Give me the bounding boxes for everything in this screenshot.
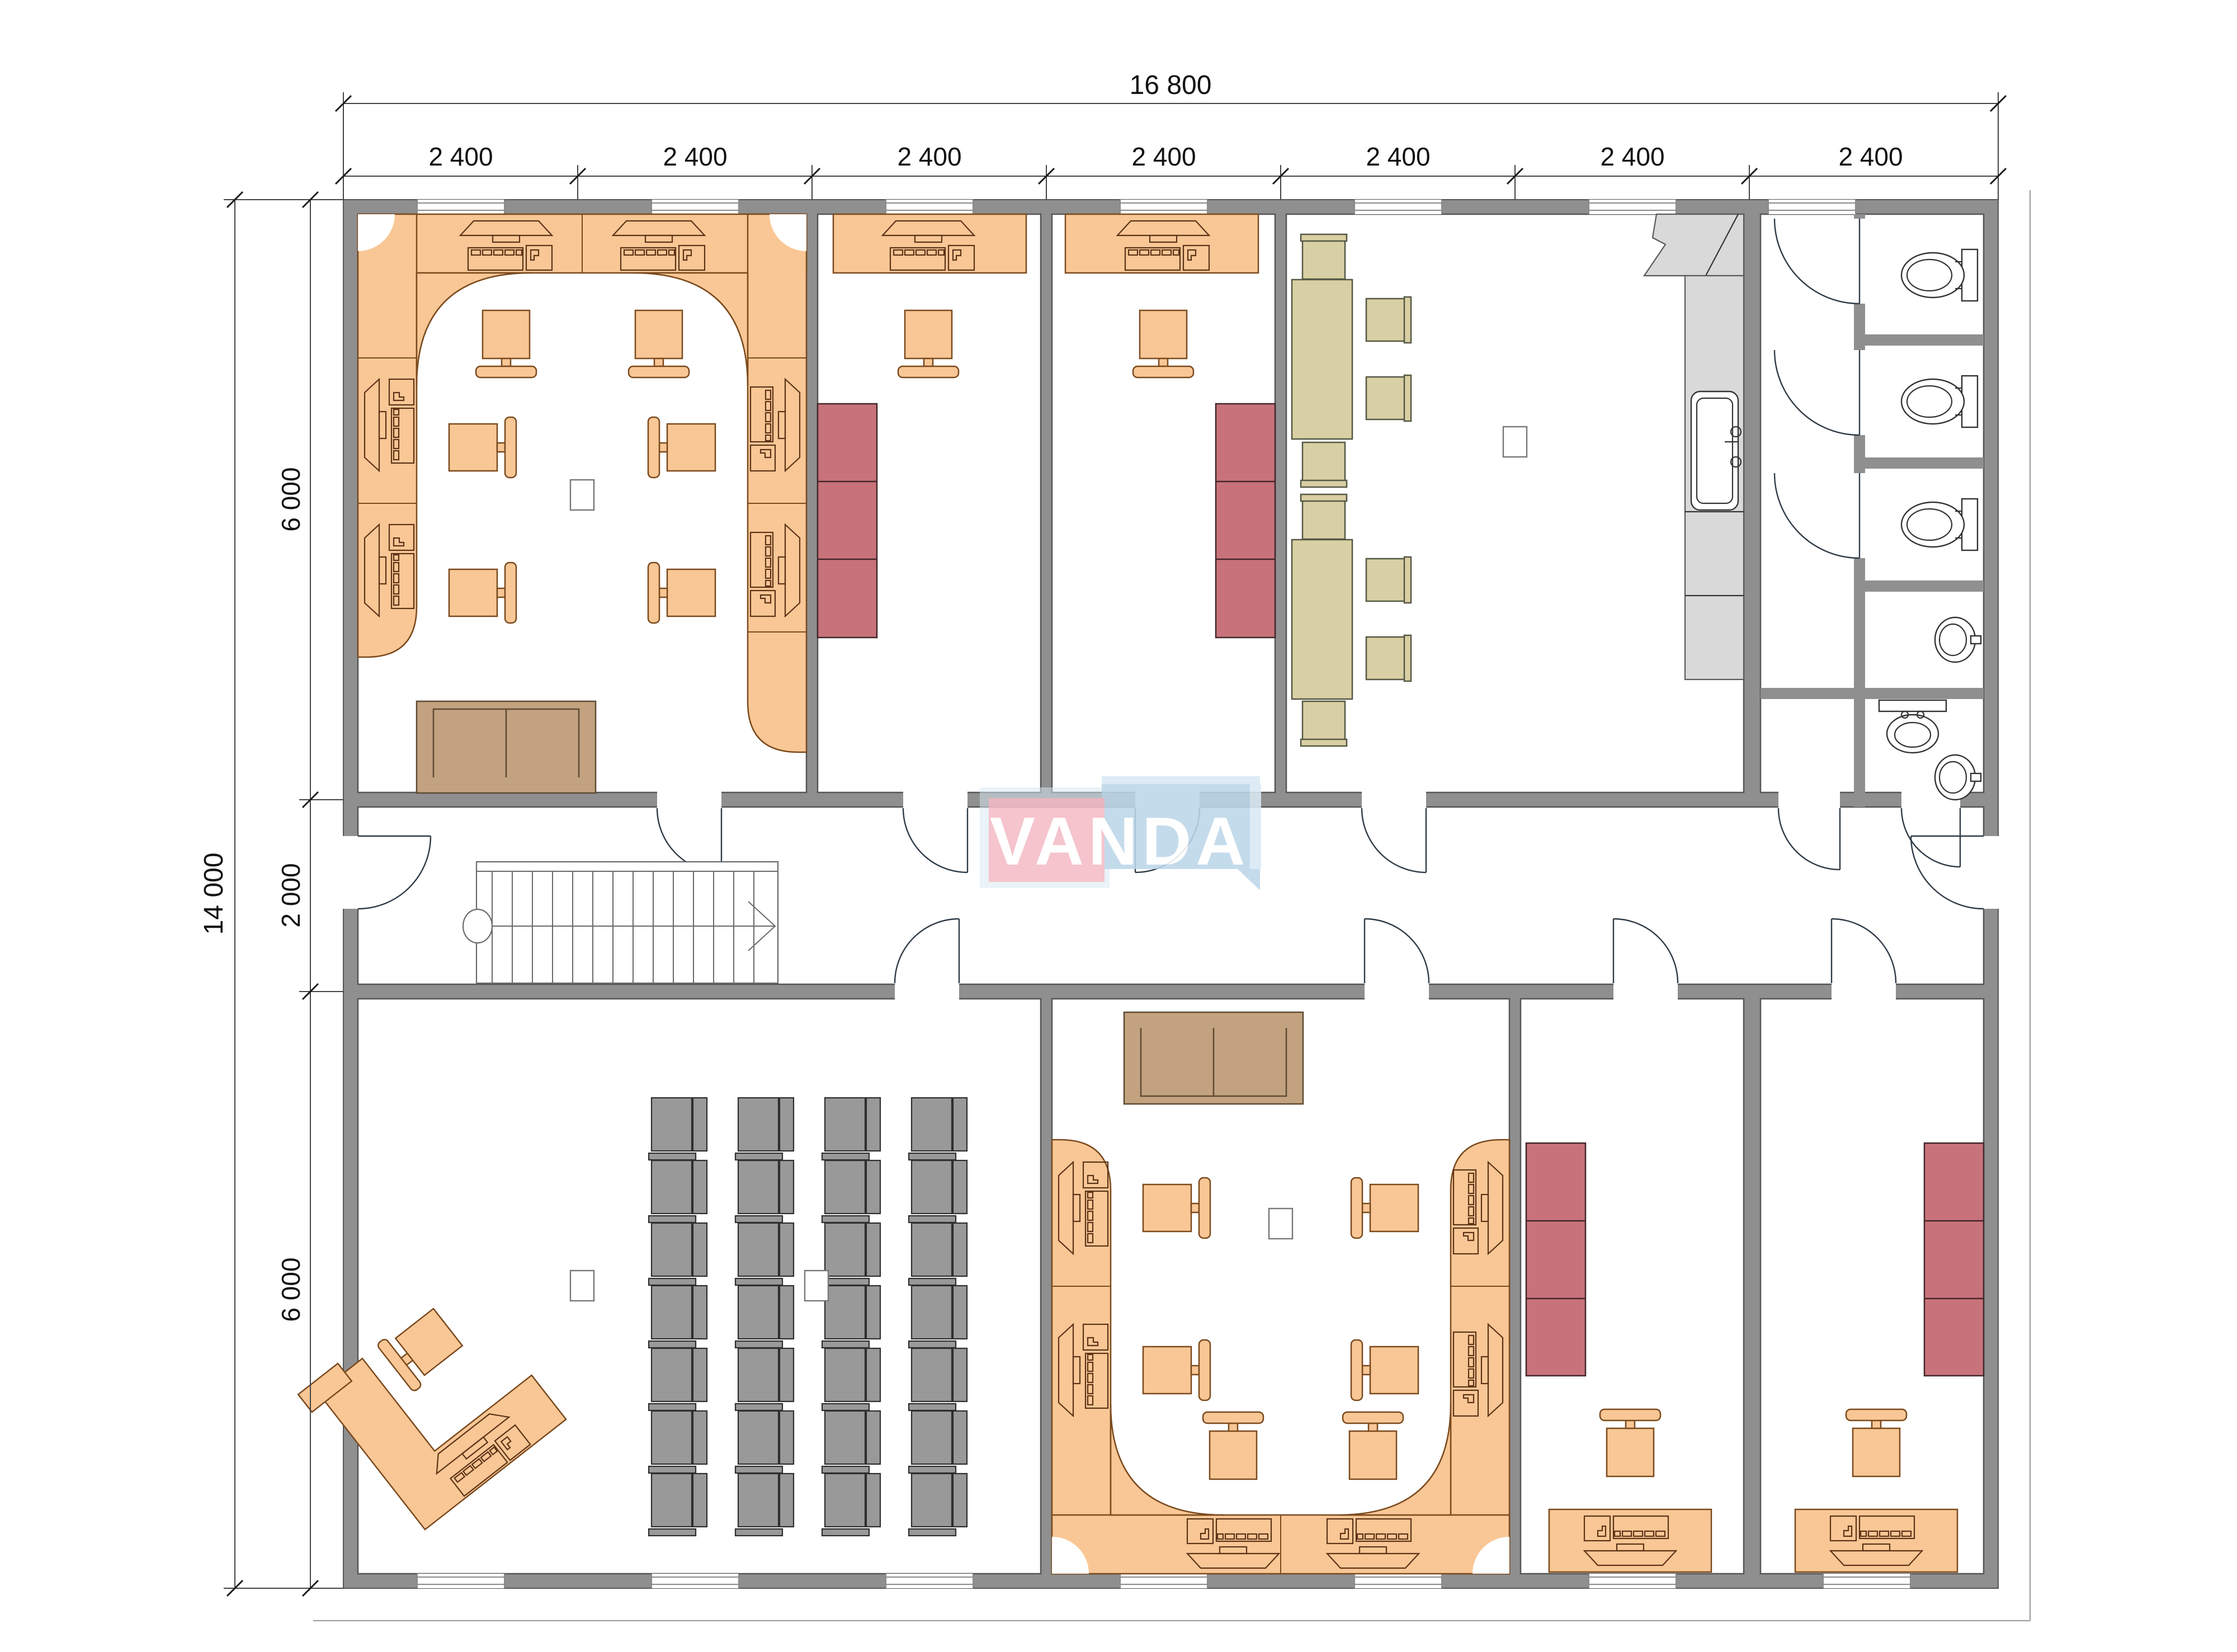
window: [1120, 1574, 1207, 1588]
dim-bay: 2 400: [663, 142, 727, 171]
classroom-seat: [822, 1286, 880, 1348]
classroom-seat: [909, 1286, 967, 1348]
desk: [1065, 214, 1258, 273]
chair-icon: [1366, 557, 1411, 603]
dim-bay: 2 400: [428, 142, 493, 171]
window: [652, 200, 739, 214]
classroom-seat: [822, 1160, 880, 1223]
cabinet: [818, 404, 877, 638]
chair-icon: [1143, 1340, 1210, 1400]
column-marker: [570, 480, 594, 510]
stair-start-circle: [463, 909, 492, 943]
toilet-icon: [1901, 249, 1978, 301]
chair-icon: [1366, 375, 1411, 421]
chair-icon: [1143, 1178, 1210, 1238]
classroom-seat: [909, 1160, 967, 1223]
window: [1823, 1574, 1910, 1588]
sofa: [1124, 1012, 1303, 1104]
dim-bay: 2 400: [897, 142, 961, 171]
classroom-seat: [649, 1223, 707, 1285]
watermark-logo: VANDA: [980, 776, 1261, 890]
classroom-seat: [822, 1474, 880, 1536]
dim-bay: 2 400: [1600, 142, 1664, 171]
window: [417, 1574, 504, 1588]
toilet-icon: [1901, 499, 1978, 550]
column-marker: [1503, 427, 1527, 457]
floor-plan-page: 16 800 2 400 2 400 2 400 2 400 2 400 2 4…: [0, 0, 2237, 1652]
window: [417, 200, 504, 214]
chair-icon: [1203, 1412, 1263, 1479]
chair-icon: [476, 310, 536, 377]
desk: [833, 214, 1026, 273]
washroom-wall: [1761, 688, 1984, 699]
classroom-seat: [735, 1348, 794, 1410]
toilet-icon: [1901, 376, 1978, 427]
classroom-seat: [735, 1286, 794, 1348]
dim-bay: 2 400: [1366, 142, 1430, 171]
room-toilets-floor: [1761, 214, 1984, 792]
dim-seg: 2 000: [276, 863, 305, 927]
west-entrance-opening: [342, 836, 359, 909]
chair-icon: [1301, 234, 1347, 279]
desk: [1795, 1509, 1957, 1572]
column-marker: [570, 1271, 594, 1301]
classroom-seat: [649, 1160, 707, 1223]
dim-total-width: 16 800: [1130, 70, 1212, 100]
chair-icon: [648, 563, 715, 623]
desk-left-band: [358, 214, 417, 657]
chair-icon: [1343, 1412, 1403, 1479]
window: [1355, 1574, 1442, 1588]
chair-icon: [449, 417, 516, 478]
dim-seg: 6 000: [276, 1257, 305, 1321]
classroom-seat: [649, 1474, 707, 1536]
dim-bay: 2 400: [1131, 142, 1196, 171]
window: [1355, 200, 1442, 214]
classroom-seat: [822, 1411, 880, 1473]
chair-icon: [648, 417, 715, 478]
classroom-seat: [649, 1098, 707, 1160]
window: [1768, 200, 1856, 214]
stall-partition: [1865, 457, 1984, 469]
classroom-seat: [735, 1223, 794, 1285]
dimension-top: 16 800 2 400 2 400 2 400 2 400 2 400 2 4…: [336, 70, 2006, 200]
classroom-seat: [909, 1474, 967, 1536]
column-marker: [1269, 1209, 1292, 1239]
window: [886, 200, 973, 214]
classroom-seat: [909, 1098, 967, 1160]
classroom-seat: [735, 1411, 794, 1473]
classroom-seat: [822, 1223, 880, 1285]
classroom-seat: [909, 1223, 967, 1285]
column-marker: [805, 1271, 828, 1301]
window: [886, 1574, 973, 1588]
room-meeting-kitchen-floor: [1286, 214, 1744, 792]
chair-icon: [1301, 701, 1347, 746]
dim-total-height: 14 000: [199, 853, 229, 935]
washroom-wall: [1854, 699, 1865, 807]
chair-icon: [898, 310, 959, 377]
kitchen-sink-icon: [1691, 391, 1741, 510]
desk-left-band: [1052, 1140, 1111, 1574]
classroom-seat: [822, 1348, 880, 1410]
classroom-seat: [909, 1348, 967, 1410]
classroom-seat: [649, 1286, 707, 1348]
classroom-seat: [735, 1098, 794, 1160]
desk-right-band: [1451, 1140, 1509, 1574]
window: [1589, 200, 1676, 214]
staircase: [463, 862, 778, 983]
meeting-table: [1292, 280, 1352, 439]
watermark-text: VANDA: [990, 803, 1250, 879]
meeting-table: [1292, 540, 1352, 699]
chair-icon: [1366, 297, 1411, 343]
dim-bay: 2 400: [1838, 142, 1903, 171]
chair-icon: [1351, 1340, 1418, 1400]
chair-icon: [449, 563, 516, 623]
chair-icon: [629, 310, 689, 377]
cabinet: [1526, 1143, 1585, 1376]
window: [1120, 200, 1207, 214]
classroom-seat: [909, 1411, 967, 1473]
chair-icon: [1301, 494, 1347, 539]
dim-seg: 6 000: [276, 467, 305, 531]
east-entrance-opening: [1983, 836, 1999, 909]
cabinet: [1216, 404, 1275, 638]
window: [652, 1574, 739, 1588]
stall-partition: [1865, 334, 1984, 346]
chair-icon: [1366, 635, 1411, 681]
classroom-seat: [735, 1474, 794, 1536]
sofa: [417, 701, 596, 793]
chair-icon: [1133, 310, 1193, 377]
desk: [1549, 1509, 1711, 1572]
chair-icon: [1351, 1178, 1418, 1238]
chair-icon: [1600, 1409, 1660, 1476]
classroom-seat: [649, 1348, 707, 1410]
stall-partition: [1865, 580, 1984, 592]
chair-icon: [1846, 1409, 1906, 1476]
classroom-seat: [822, 1098, 880, 1160]
chair-icon: [1301, 442, 1347, 487]
floor-plan-drawing: 16 800 2 400 2 400 2 400 2 400 2 400 2 4…: [0, 0, 2237, 1652]
desk-right-band: [748, 214, 806, 752]
window: [1589, 1574, 1676, 1588]
classroom-seat: [649, 1411, 707, 1473]
cabinet: [1924, 1143, 1984, 1376]
classroom-seat: [735, 1160, 794, 1223]
